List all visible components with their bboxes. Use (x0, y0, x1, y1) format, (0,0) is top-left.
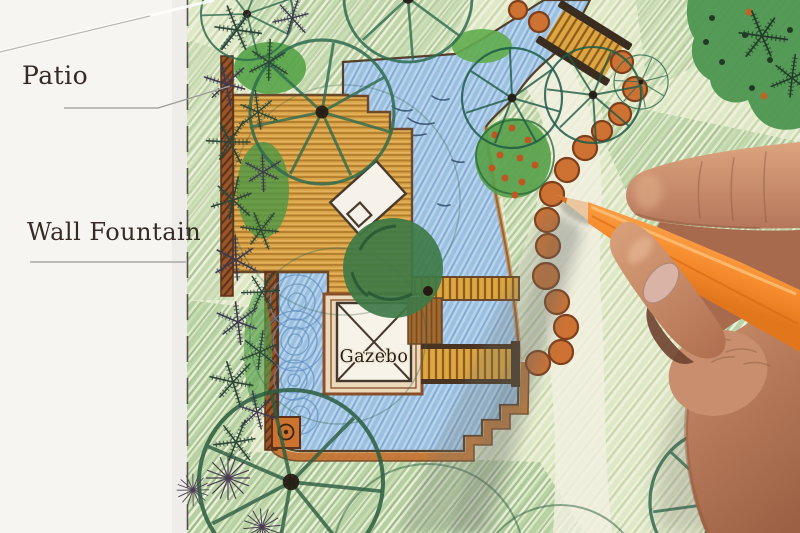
wall-fountain-label: Wall Fountain (27, 218, 201, 246)
patio-label: Patio (22, 61, 88, 90)
canopy-tree (343, 218, 443, 318)
rosette-plant (206, 456, 250, 500)
gazebo-label: Gazebo (340, 347, 409, 367)
landscape-plan-photo: Gazebo (0, 0, 800, 533)
plan-drawing: Gazebo (0, 0, 800, 533)
